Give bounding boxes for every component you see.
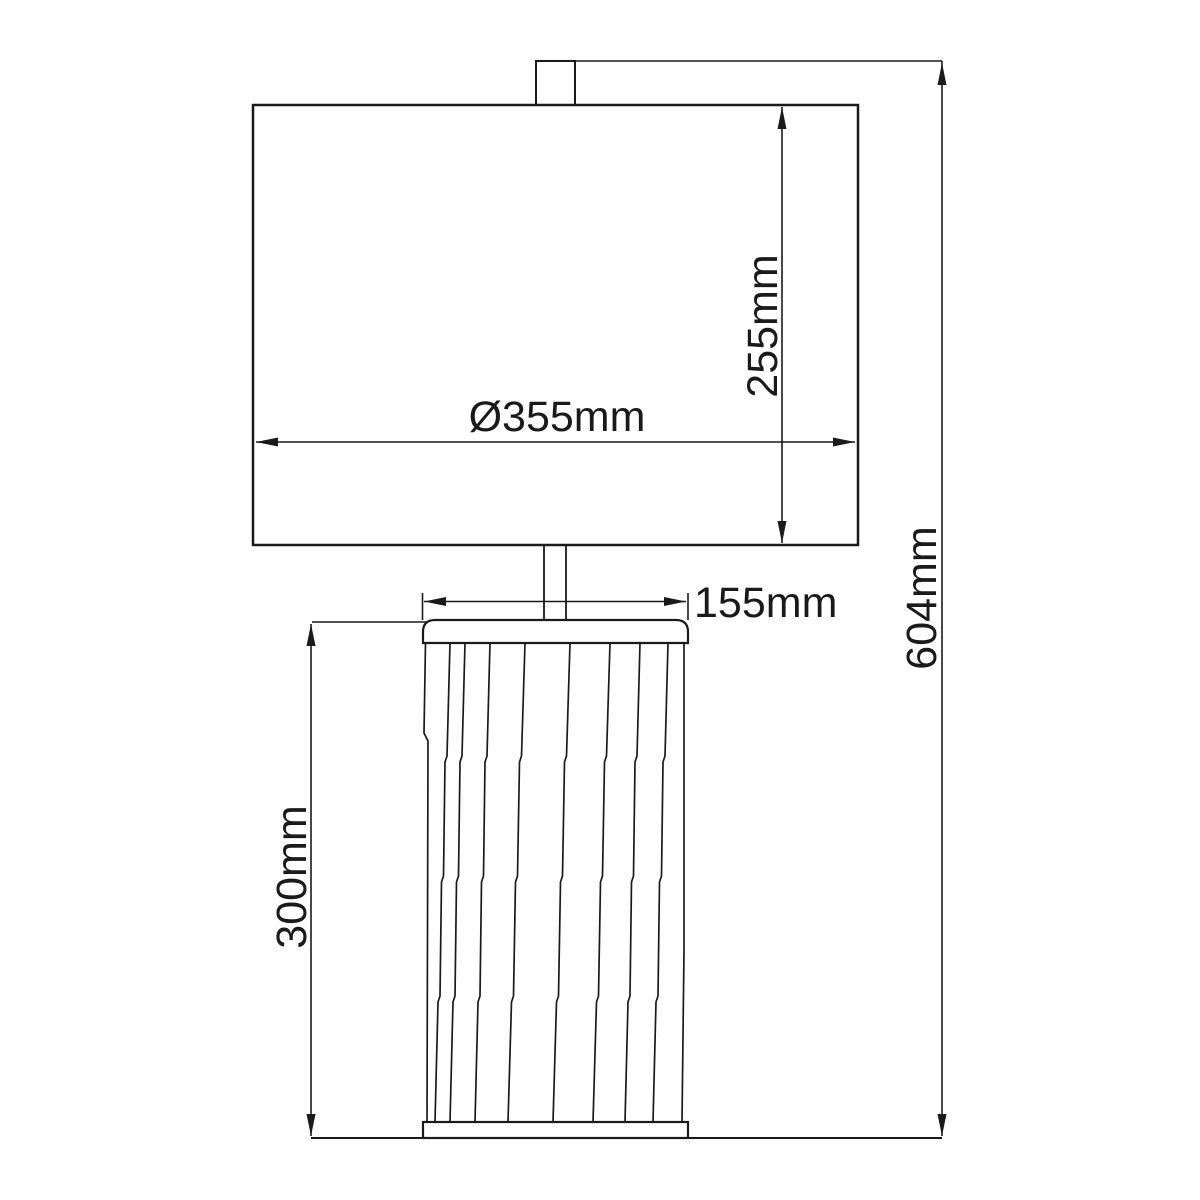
arrow-down-icon bbox=[307, 1114, 316, 1136]
flute-line bbox=[553, 643, 570, 1122]
arrow-left-icon bbox=[424, 597, 446, 606]
arrow-left-icon bbox=[256, 438, 278, 447]
flute-line bbox=[424, 643, 428, 1122]
dim-shade-diameter: Ø355mm bbox=[256, 393, 855, 447]
shade-diameter-label: Ø355mm bbox=[469, 393, 646, 441]
arrow-right-icon bbox=[664, 597, 686, 606]
flute-line bbox=[682, 643, 684, 1122]
base-cap bbox=[423, 620, 688, 643]
flute-line bbox=[625, 643, 640, 1122]
shade-height-label: 255mm bbox=[739, 254, 787, 397]
finial bbox=[536, 61, 575, 105]
base-plinth bbox=[423, 1122, 688, 1138]
drawing-canvas: Ø355mm 255mm 155mm bbox=[0, 0, 1200, 1200]
flute-line bbox=[450, 643, 465, 1122]
arrow-up-icon bbox=[778, 107, 787, 129]
arrow-down-icon bbox=[778, 521, 787, 543]
arrow-down-icon bbox=[938, 1114, 947, 1136]
lamp-dimension-diagram: Ø355mm 255mm 155mm bbox=[0, 0, 1200, 1200]
flute-line bbox=[653, 643, 668, 1122]
arrow-up-icon bbox=[938, 63, 947, 85]
dimensions: Ø355mm 255mm 155mm bbox=[256, 61, 947, 1136]
flute-line bbox=[435, 643, 450, 1122]
flute-line bbox=[508, 643, 525, 1122]
fluted-column bbox=[424, 643, 684, 1122]
dim-base-height: 300mm bbox=[268, 622, 428, 1136]
arrow-right-icon bbox=[833, 438, 855, 447]
flute-line bbox=[475, 643, 490, 1122]
base-top-width-label: 155mm bbox=[694, 579, 837, 627]
dim-shade-height: 255mm bbox=[739, 107, 787, 543]
lamp-outline bbox=[253, 61, 942, 1138]
base-height-label: 300mm bbox=[268, 805, 316, 948]
overall-height-label: 604mm bbox=[898, 526, 946, 669]
arrow-up-icon bbox=[307, 624, 316, 646]
flute-line bbox=[593, 643, 610, 1122]
